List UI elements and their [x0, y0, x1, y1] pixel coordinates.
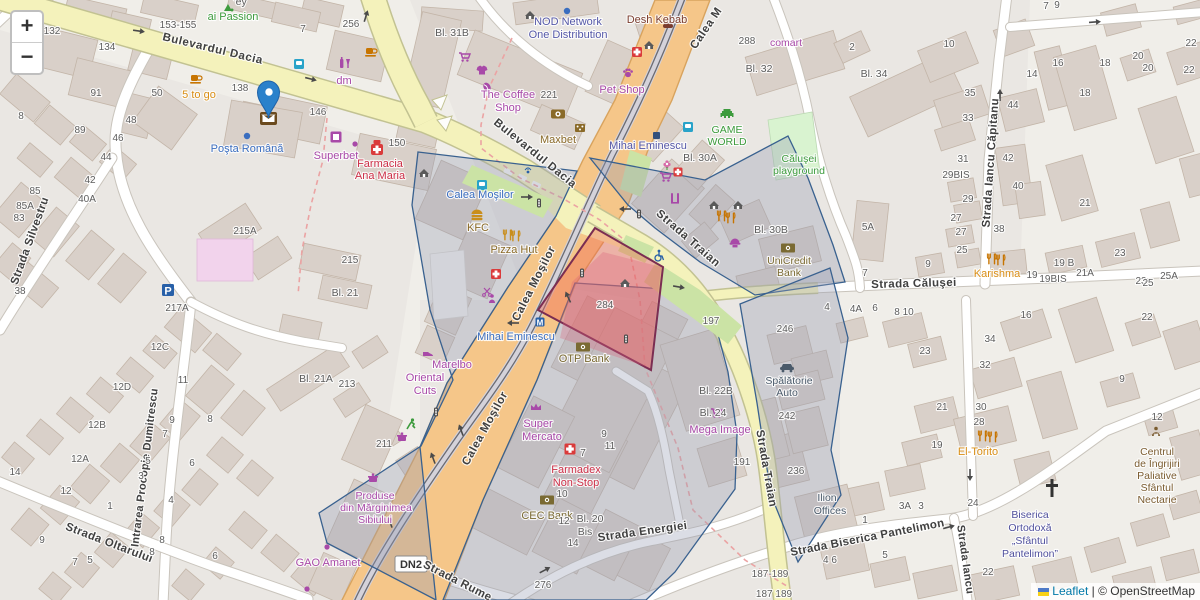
svg-text:191: 191	[734, 457, 751, 468]
svg-text:OTP Bank: OTP Bank	[559, 353, 610, 365]
svg-text:Biserica: Biserica	[1011, 509, 1049, 521]
svg-text:7: 7	[300, 24, 306, 35]
svg-text:Bis: Bis	[578, 526, 593, 538]
svg-text:288: 288	[739, 36, 756, 47]
svg-text:Bl. 30A: Bl. 30A	[683, 152, 717, 164]
svg-text:30: 30	[975, 402, 987, 413]
svg-text:46: 46	[112, 133, 124, 144]
svg-text:Karishma: Karishma	[974, 268, 1021, 280]
svg-text:32: 32	[979, 360, 991, 371]
svg-text:83: 83	[13, 213, 25, 224]
svg-text:7: 7	[162, 429, 168, 440]
svg-text:150: 150	[389, 138, 406, 149]
svg-text:3A: 3A	[899, 501, 912, 512]
svg-text:187 189: 187 189	[756, 589, 793, 600]
svg-text:23: 23	[1114, 248, 1126, 259]
svg-text:3: 3	[138, 471, 144, 482]
svg-text:215A: 215A	[233, 226, 257, 237]
svg-text:221: 221	[541, 90, 558, 101]
svg-text:3: 3	[918, 501, 924, 512]
svg-text:38: 38	[14, 286, 26, 297]
svg-text:11: 11	[605, 441, 616, 452]
svg-text:48: 48	[125, 115, 137, 126]
svg-text:Ilion: Ilion	[817, 492, 836, 504]
svg-text:Super: Super	[523, 418, 553, 430]
svg-text:Bl. 34: Bl. 34	[861, 68, 888, 80]
svg-text:Produse: Produse	[355, 490, 394, 502]
svg-text:Non-Stop: Non-Stop	[553, 477, 599, 489]
svg-text:Pet Shop: Pet Shop	[599, 84, 644, 96]
svg-text:276: 276	[535, 580, 552, 591]
svg-text:playground: playground	[773, 165, 825, 177]
svg-text:dm: dm	[336, 75, 351, 87]
svg-text:187-189: 187-189	[752, 569, 789, 580]
svg-text:Mihai Eminescu: Mihai Eminescu	[477, 331, 555, 343]
svg-text:197: 197	[703, 316, 720, 327]
svg-text:5: 5	[87, 555, 93, 566]
svg-text:236: 236	[788, 466, 805, 477]
svg-text:GAO Amanet: GAO Amanet	[296, 557, 361, 569]
svg-text:Farmacia: Farmacia	[357, 158, 404, 170]
svg-text:40: 40	[1012, 181, 1024, 192]
svg-text:28: 28	[973, 417, 985, 428]
svg-text:12A: 12A	[71, 454, 89, 465]
svg-text:Bl. 20: Bl. 20	[577, 513, 604, 525]
svg-text:25: 25	[956, 245, 968, 256]
svg-text:33: 33	[962, 113, 974, 124]
svg-text:246: 246	[777, 324, 794, 335]
svg-text:23: 23	[919, 346, 931, 357]
svg-text:Ana Maria: Ana Maria	[355, 170, 406, 182]
svg-text:GAME: GAME	[712, 124, 743, 136]
svg-text:22: 22	[1183, 65, 1195, 76]
svg-text:9: 9	[39, 535, 45, 546]
svg-text:Spălătorie: Spălătorie	[765, 375, 812, 387]
svg-text:Superbet: Superbet	[314, 150, 359, 162]
svg-text:9: 9	[169, 415, 175, 426]
svg-text:42: 42	[84, 175, 96, 186]
svg-text:215: 215	[342, 255, 359, 266]
svg-text:91: 91	[90, 88, 102, 99]
svg-text:Bl. 31B: Bl. 31B	[435, 27, 469, 39]
svg-text:18: 18	[1079, 88, 1091, 99]
svg-text:9: 9	[601, 429, 607, 440]
svg-text:WORLD: WORLD	[707, 136, 747, 148]
svg-text:12C: 12C	[151, 342, 169, 353]
svg-text:42: 42	[1002, 153, 1014, 164]
svg-text:Bl. 32: Bl. 32	[746, 63, 773, 75]
svg-text:18: 18	[1099, 58, 1111, 69]
svg-text:5 to go: 5 to go	[182, 89, 216, 101]
svg-text:21: 21	[1079, 198, 1091, 209]
svg-text:Oriental: Oriental	[406, 372, 445, 384]
svg-text:44: 44	[1007, 100, 1019, 111]
svg-text:Paliative: Paliative	[1137, 470, 1177, 482]
svg-text:132: 132	[44, 26, 61, 37]
svg-text:Centrul: Centrul	[1140, 446, 1174, 458]
svg-text:Calea Moşilor: Calea Moşilor	[446, 189, 514, 201]
svg-text:Pizza Hut: Pizza Hut	[490, 244, 537, 256]
svg-text:5: 5	[145, 456, 151, 467]
svg-text:284: 284	[597, 300, 614, 311]
svg-text:8 10: 8 10	[894, 307, 914, 318]
svg-text:M: M	[537, 319, 544, 328]
svg-text:Offices: Offices	[814, 505, 846, 517]
svg-text:Sfântul: Sfântul	[1141, 482, 1174, 494]
svg-text:12: 12	[60, 486, 72, 497]
svg-text:12: 12	[1151, 412, 1163, 423]
svg-text:40A: 40A	[78, 194, 96, 205]
svg-text:Bank: Bank	[777, 267, 802, 279]
svg-text:Mihai Eminescu: Mihai Eminescu	[609, 140, 687, 152]
svg-text:NOD Network: NOD Network	[534, 16, 602, 28]
svg-text:211: 211	[376, 439, 392, 450]
svg-text:19BIS: 19BIS	[1039, 274, 1067, 285]
svg-text:Bl. 21: Bl. 21	[332, 287, 359, 299]
svg-text:Shop: Shop	[495, 102, 521, 114]
svg-text:242: 242	[779, 411, 796, 422]
svg-text:Marelbo: Marelbo	[432, 359, 472, 371]
svg-text:21A: 21A	[1076, 268, 1094, 279]
svg-text:14: 14	[1026, 69, 1038, 80]
svg-text:Sibiului: Sibiului	[358, 514, 392, 526]
svg-text:85: 85	[29, 186, 41, 197]
svg-text:27: 27	[950, 213, 962, 224]
svg-text:Pantelimon”: Pantelimon”	[1002, 548, 1059, 560]
svg-text:10: 10	[556, 489, 568, 500]
svg-text:One Distribution: One Distribution	[529, 29, 608, 41]
svg-text:4 6: 4 6	[823, 555, 837, 566]
svg-text:12: 12	[558, 516, 570, 527]
svg-text:9: 9	[1054, 0, 1060, 11]
svg-text:1: 1	[862, 515, 868, 526]
svg-text:153-155: 153-155	[160, 20, 197, 31]
svg-text:22: 22	[982, 567, 994, 578]
svg-text:27: 27	[955, 227, 967, 238]
svg-text:Căluşei: Căluşei	[781, 153, 816, 165]
svg-text:50: 50	[151, 88, 163, 99]
svg-text:25: 25	[1142, 278, 1154, 289]
svg-text:217A: 217A	[165, 303, 189, 314]
svg-text:85A: 85A	[16, 201, 34, 212]
svg-text:5: 5	[882, 550, 888, 561]
svg-text:44: 44	[100, 152, 112, 163]
svg-text:19: 19	[1026, 270, 1038, 281]
svg-text:11: 11	[178, 375, 189, 386]
svg-text:Ortodoxă: Ortodoxă	[1008, 522, 1051, 534]
svg-text:„Sfântul: „Sfântul	[1012, 535, 1048, 547]
svg-text:24: 24	[967, 498, 979, 509]
svg-text:7: 7	[862, 268, 868, 279]
svg-text:KFC: KFC	[467, 222, 489, 234]
svg-text:6: 6	[872, 303, 878, 314]
svg-text:9: 9	[1119, 374, 1125, 385]
svg-text:7: 7	[580, 448, 586, 459]
svg-text:22: 22	[1141, 312, 1153, 323]
svg-text:1: 1	[107, 501, 113, 512]
svg-text:DN2: DN2	[400, 559, 422, 571]
svg-text:29: 29	[962, 194, 974, 205]
svg-text:19 B: 19 B	[1054, 258, 1075, 269]
svg-text:Nectarie: Nectarie	[1137, 494, 1176, 506]
svg-text:Desh Kebab: Desh Kebab	[627, 14, 688, 26]
svg-text:8: 8	[207, 414, 213, 425]
svg-text:6: 6	[212, 551, 218, 562]
svg-text:ai Passion: ai Passion	[208, 11, 259, 23]
svg-text:The Coffee: The Coffee	[481, 89, 535, 101]
svg-text:16: 16	[1052, 58, 1064, 69]
svg-text:34: 34	[984, 334, 996, 345]
svg-text:16: 16	[1020, 310, 1032, 321]
svg-text:4A: 4A	[850, 304, 863, 315]
svg-text:6: 6	[189, 458, 195, 469]
svg-text:35: 35	[964, 88, 976, 99]
svg-text:Cuts: Cuts	[414, 385, 437, 397]
svg-text:5A: 5A	[862, 222, 875, 233]
svg-text:Farmadex: Farmadex	[551, 464, 601, 476]
svg-text:Maxbet: Maxbet	[540, 134, 576, 146]
svg-text:12B: 12B	[88, 420, 106, 431]
svg-text:7: 7	[72, 557, 78, 568]
svg-text:20: 20	[1142, 63, 1154, 74]
svg-text:213: 213	[339, 379, 356, 390]
svg-text:Bl. 21A: Bl. 21A	[299, 373, 333, 385]
svg-text:7: 7	[1043, 1, 1049, 12]
svg-text:38: 38	[993, 224, 1005, 235]
svg-text:Auto: Auto	[776, 387, 798, 399]
svg-text:19: 19	[931, 440, 943, 451]
svg-text:UniCredit: UniCredit	[767, 255, 811, 267]
svg-text:31: 31	[957, 154, 969, 165]
svg-text:Bl. 24: Bl. 24	[700, 407, 727, 419]
svg-text:9: 9	[925, 259, 931, 270]
svg-text:’ey: ’ey	[233, 0, 247, 8]
svg-text:21: 21	[936, 402, 948, 413]
svg-text:146: 146	[310, 107, 327, 118]
svg-text:25A: 25A	[1160, 271, 1178, 282]
svg-text:29BIS: 29BIS	[942, 170, 970, 181]
svg-text:Bl. 30B: Bl. 30B	[754, 224, 788, 236]
svg-text:Bl. 22B: Bl. 22B	[699, 385, 733, 397]
svg-text:4: 4	[168, 495, 174, 506]
svg-text:Mercato: Mercato	[522, 431, 562, 443]
svg-text:8: 8	[18, 111, 24, 122]
svg-text:10: 10	[943, 39, 955, 50]
svg-text:din Mărginimea: din Mărginimea	[340, 502, 412, 514]
svg-text:4: 4	[824, 302, 830, 313]
svg-text:89: 89	[74, 125, 86, 136]
svg-text:Strada Căluşei: Strada Căluşei	[871, 277, 957, 291]
svg-text:138: 138	[232, 83, 249, 94]
svg-text:8: 8	[159, 535, 165, 546]
svg-text:12D: 12D	[113, 382, 131, 393]
svg-text:Mega Image: Mega Image	[689, 424, 750, 436]
svg-text:2: 2	[849, 42, 855, 53]
svg-text:8: 8	[149, 547, 155, 558]
svg-text:comart: comart	[770, 37, 802, 49]
svg-text:20: 20	[1132, 51, 1144, 62]
svg-text:Poşta Română: Poşta Română	[211, 143, 285, 155]
svg-text:256: 256	[343, 19, 360, 30]
svg-text:El-Torito: El-Torito	[958, 446, 998, 458]
svg-text:P: P	[164, 286, 171, 298]
svg-text:14: 14	[9, 467, 21, 478]
svg-text:14: 14	[567, 538, 579, 549]
svg-text:de Îngrijiri: de Îngrijiri	[1134, 457, 1180, 470]
svg-text:22: 22	[1185, 38, 1197, 49]
svg-text:134: 134	[99, 42, 116, 53]
